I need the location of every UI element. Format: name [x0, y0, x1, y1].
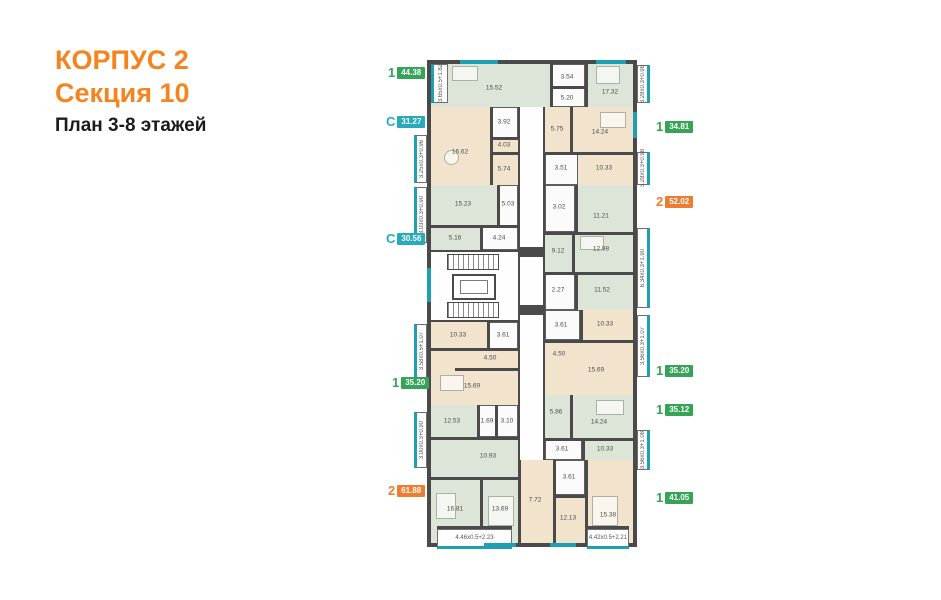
balcony: 3.28x0.3+0.98	[637, 65, 650, 103]
apartment-area: 61.88	[397, 485, 425, 497]
balcony-dim-label: 3.03x0.3+0.90	[419, 196, 425, 234]
room-area-label: 3.10	[501, 418, 514, 425]
room-area-label: 5.74	[498, 166, 511, 173]
balcony: 3.56x0.3+1.07	[637, 315, 650, 377]
wall	[575, 185, 578, 232]
room-area-label: 5.03	[502, 201, 515, 208]
apartment-type: 2	[388, 484, 395, 497]
room-area-label: 9.12	[552, 248, 565, 255]
wall	[518, 460, 521, 543]
room-area-label: 2.27	[552, 287, 565, 294]
room-area-label: 3.61	[497, 332, 510, 339]
balcony-dim-label: 4.46x0.5+2.23	[455, 535, 493, 541]
room-area-label: 4.50	[484, 355, 497, 362]
balcony: 3.56x0.3+1.08	[637, 430, 650, 470]
room-area-label: 17.32	[602, 89, 618, 96]
balcony: 4.42x0.5+2.21	[587, 529, 629, 549]
room-area-label: 4.50	[553, 351, 566, 358]
apartment-type: 1	[656, 120, 663, 133]
apartment-badge-31-27[interactable]: С 31.27	[386, 115, 425, 128]
apartment-area: 34.81	[665, 121, 693, 133]
room-area-label: 10.33	[597, 321, 613, 328]
corridor	[518, 107, 545, 460]
wall	[545, 340, 633, 343]
room-area-label: 10.33	[596, 165, 612, 172]
balcony-dim-label: 6.34x0.3+1.90	[640, 249, 646, 287]
service-shaft	[520, 305, 543, 315]
balcony-dim-label: 4.42x0.5+2.21	[589, 535, 627, 541]
room-area-label: 16.81	[447, 506, 463, 513]
wall	[477, 405, 480, 437]
apartment-badge-41-05[interactable]: 1 41.05	[656, 491, 693, 504]
balcony-dim-label: 3.56x0.3+1.07	[640, 327, 646, 365]
apartment-area: 35.20	[401, 377, 429, 389]
wall	[431, 348, 518, 351]
room-area-label: 5.75	[551, 126, 564, 133]
balcony: 3.00x0.3+0.90	[414, 412, 427, 468]
section-title: Секция 10	[55, 77, 206, 110]
room-area-label: 11.21	[593, 213, 609, 220]
wall	[545, 152, 633, 155]
wall	[570, 107, 573, 152]
window	[596, 60, 626, 64]
apartment-area: 35.12	[665, 404, 693, 416]
wall	[490, 107, 493, 185]
balcony-dim-label: 3.28x0.3+0.98	[640, 149, 646, 187]
balcony-dim-label: 3.58x0.5+1.07	[419, 332, 425, 370]
wall	[545, 438, 633, 441]
apartment-area: 41.05	[665, 492, 693, 504]
room-area-label: 4.03	[498, 142, 511, 149]
apartment-type: 1	[656, 491, 663, 504]
floor-plan-page: КОРПУС 2 Секция 10 План 3-8 этажей	[0, 0, 941, 600]
room-area-label: 15.38	[600, 512, 616, 519]
apartment-type: С	[386, 232, 395, 245]
apartment-badge-44-38[interactable]: 1 44.38	[388, 66, 425, 79]
room-area-label: 15.23	[455, 201, 471, 208]
apartment-type: 1	[388, 66, 395, 79]
elevator-cab	[460, 280, 488, 294]
wall	[490, 137, 518, 140]
plan-subtitle: План 3-8 этажей	[55, 113, 206, 139]
wall	[480, 225, 483, 250]
window	[484, 543, 516, 547]
apartment-badge-30-56[interactable]: С 30.56	[386, 232, 425, 245]
room-area-label: 10.33	[450, 332, 466, 339]
room-area-label: 3.61	[556, 446, 569, 453]
wall	[545, 272, 633, 275]
wall	[431, 225, 518, 228]
balcony-dim-label: 3.00x0.3+0.90	[419, 421, 425, 459]
stairs-lower-flight	[447, 302, 499, 318]
apartment-area: 31.27	[397, 116, 425, 128]
furniture-bed	[596, 400, 624, 415]
apartment-badge-34-81[interactable]: 1 34.81	[656, 120, 693, 133]
room-area-label: 7.72	[529, 497, 542, 504]
room-area-label: 3.54	[561, 74, 574, 81]
room-area-label: 1.69	[481, 418, 494, 425]
apartment-area: 35.20	[665, 365, 693, 377]
room-area-label: 3.61	[555, 322, 568, 329]
room-area-label: 11.52	[594, 287, 610, 294]
balcony-dim-label: 3.28x0.3+0.98	[640, 65, 646, 103]
room-area-label: 5.16	[449, 235, 462, 242]
apartment-type: 2	[656, 195, 663, 208]
wall	[570, 395, 573, 438]
wall	[490, 152, 518, 155]
window	[460, 60, 498, 64]
window	[550, 543, 576, 547]
apartment-badge-35-12[interactable]: 1 35.12	[656, 403, 693, 416]
wall	[545, 232, 633, 235]
room-area-label: 13.69	[492, 506, 508, 513]
building-title: КОРПУС 2	[55, 44, 206, 77]
room-area-label: 3.92	[498, 119, 511, 126]
room-area-label: 5.20	[561, 95, 574, 102]
wall	[497, 185, 500, 225]
apartment-badge-61-88[interactable]: 2 61.88	[388, 484, 425, 497]
room-area-label: 15.69	[588, 367, 604, 374]
room-area-label: 14.24	[591, 419, 607, 426]
wall	[585, 64, 588, 107]
room-area-label: 16.62	[452, 149, 468, 156]
room-area-label: 15.69	[464, 383, 480, 390]
room-area-label: 12.98	[593, 246, 609, 253]
wall	[550, 86, 585, 89]
room-area-label: 3.61	[563, 474, 576, 481]
balcony: 6.34x0.3+1.90	[637, 228, 650, 308]
room-area-label: 4.24	[493, 235, 506, 242]
apartment-area: 52.02	[665, 196, 693, 208]
room-area-label: 12.13	[560, 515, 576, 522]
apartment-type: 1	[656, 364, 663, 377]
furniture-bed	[440, 375, 464, 391]
room-area-label: 15.52	[486, 85, 502, 92]
apartment-type: С	[386, 115, 395, 128]
apartment-badge-35-20-left[interactable]: 1 35.20	[392, 376, 429, 389]
stairs-upper-flight	[447, 254, 499, 270]
window	[427, 268, 431, 302]
balcony: 3.28x0.3+0.98	[637, 152, 650, 185]
balcony: 3.58x0.5+1.07	[414, 324, 427, 378]
apartment-area: 44.38	[397, 67, 425, 79]
balcony: 3.65x0.5+1.82	[431, 64, 448, 103]
wall	[487, 322, 490, 348]
furniture-bed	[596, 66, 620, 84]
apartment-type: 1	[392, 376, 399, 389]
wall	[575, 272, 578, 310]
balcony-dim-label: 3.25x0.3+0.96	[419, 140, 425, 178]
room-area-label: 12.53	[444, 418, 460, 425]
apartment-type: 1	[656, 403, 663, 416]
wall	[572, 232, 575, 272]
apartment-area: 30.56	[397, 233, 425, 245]
balcony-dim-label: 3.56x0.3+1.08	[640, 431, 646, 469]
wall	[582, 438, 585, 460]
wall	[553, 460, 556, 543]
balcony-dim-label: 3.65x0.5+1.82	[438, 64, 444, 102]
wall	[431, 477, 518, 480]
service-shaft	[520, 247, 543, 257]
room-area-label: 3.51	[555, 165, 568, 172]
room-area-label: 10.93	[480, 453, 496, 460]
room-area-label: 10.33	[597, 446, 613, 453]
balcony: 3.25x0.3+0.96	[414, 135, 427, 183]
wall	[431, 437, 518, 440]
apartment-badge-35-20-right[interactable]: 1 35.20	[656, 364, 693, 377]
furniture-sofa	[452, 66, 478, 81]
furniture-bed	[600, 112, 626, 128]
wall	[495, 405, 498, 437]
room-area-label: 3.02	[553, 204, 566, 211]
room-area-label: 14.24	[592, 129, 608, 136]
wall	[580, 310, 583, 340]
apartment-badge-52-02[interactable]: 2 52.02	[656, 195, 693, 208]
title-block: КОРПУС 2 Секция 10 План 3-8 этажей	[55, 44, 206, 139]
wall	[553, 495, 585, 498]
room-area-label: 5.86	[550, 409, 563, 416]
wall	[455, 368, 518, 371]
window	[633, 112, 637, 138]
